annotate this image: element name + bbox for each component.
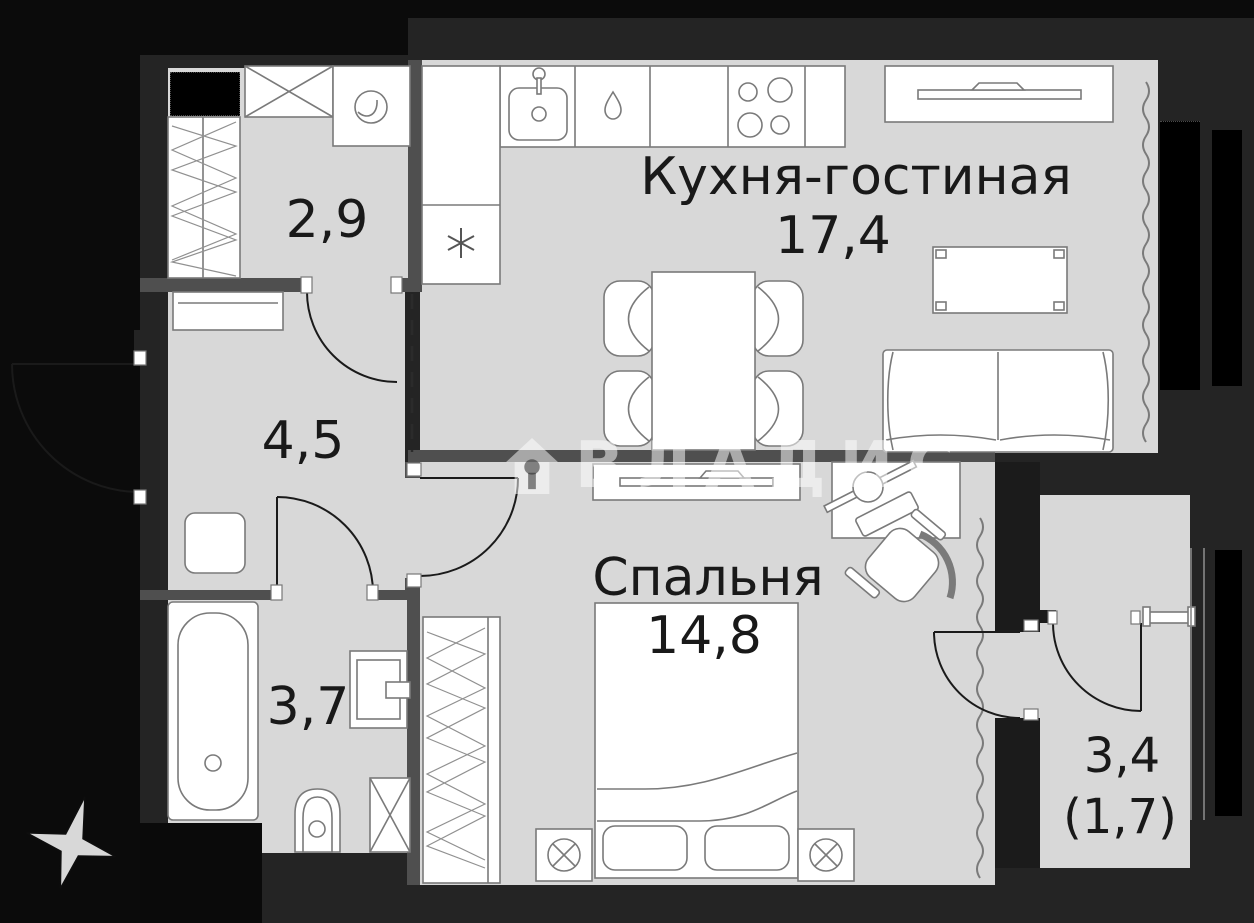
vent-shaft-balcony: [1215, 550, 1242, 816]
door-arc-entrance: [12, 364, 140, 492]
compass-star-icon: [15, 785, 128, 901]
doorway-balcony: [995, 632, 1040, 718]
label-bedroom-area: 14,8: [646, 610, 762, 662]
wall-kitchen-left: [408, 60, 422, 292]
label-bathroom-area: 3,7: [267, 681, 350, 733]
label-kitchen-living-area: 17,4: [775, 210, 891, 262]
doorway-wardrobe-room: [307, 278, 397, 292]
wall-balcony-column-bottom: [995, 718, 1040, 868]
wall-bottom-left-step: [140, 823, 262, 923]
label-bedroom-name: Спальня: [592, 552, 823, 604]
wall-kitchen-bedroom: [408, 450, 995, 462]
label-wardrobe-room-area: 2,9: [286, 194, 369, 246]
wall-balcony-column-top: [995, 462, 1040, 632]
wall-entrance-step: [134, 330, 170, 366]
wall-balcony-stub: [1040, 610, 1056, 623]
floor-bedroom: [420, 462, 995, 885]
floor-plan: Кухня-гостиная 17,4 2,9 4,5 Спальня 14,8…: [0, 0, 1254, 923]
doorway-bathroom: [277, 590, 373, 600]
wall-bathroom-bedroom: [407, 600, 420, 885]
doorway-bedroom: [405, 478, 420, 578]
label-kitchen-living-name: Кухня-гостиная: [640, 151, 1071, 203]
label-balcony-area: 3,4: [1084, 732, 1160, 780]
vent-shaft-right-2: [1212, 130, 1242, 386]
vent-shaft-wardrobe: [170, 72, 240, 116]
label-hallway-area: 4,5: [262, 415, 345, 467]
vent-shaft-right-1: [1160, 121, 1200, 390]
label-balcony-area-secondary: (1,7): [1063, 793, 1177, 841]
